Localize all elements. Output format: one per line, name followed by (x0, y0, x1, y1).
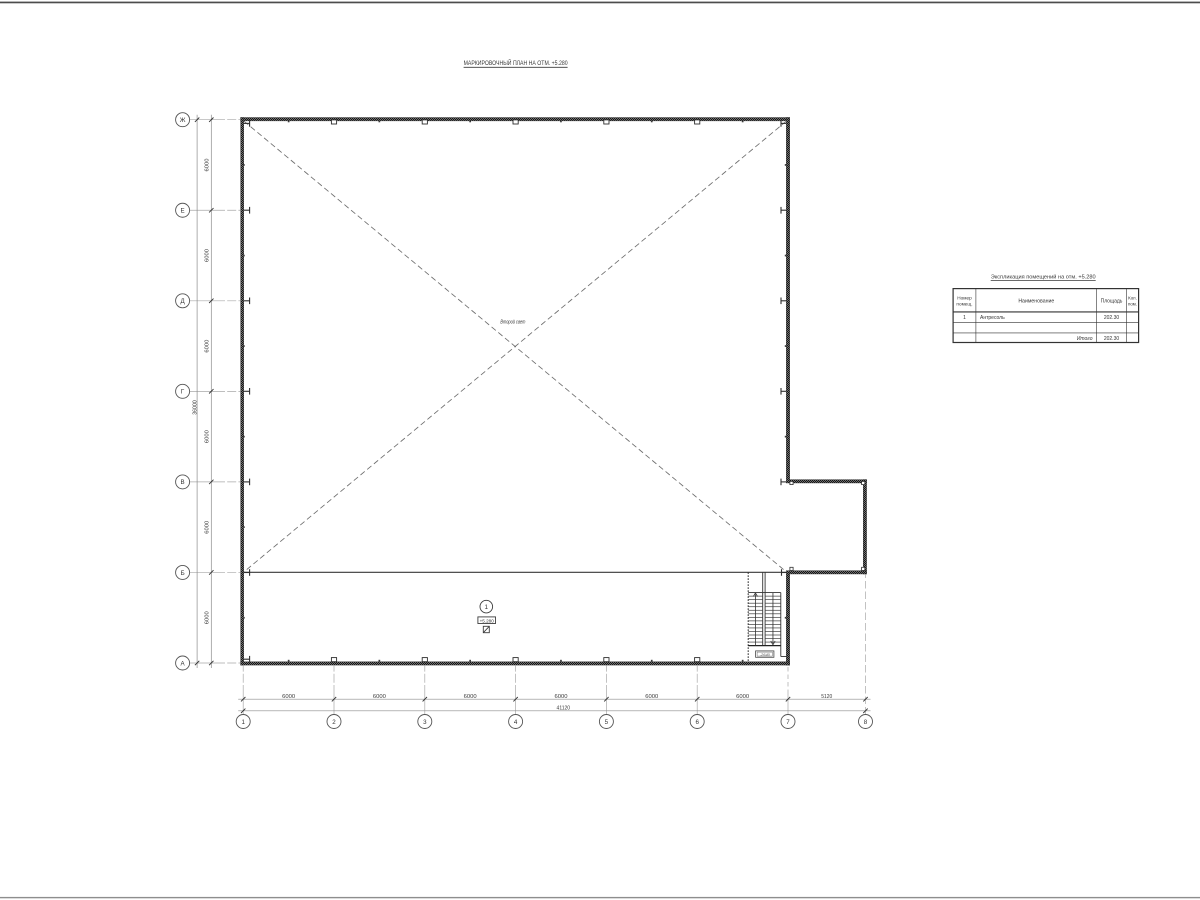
svg-text:5: 5 (605, 719, 609, 726)
svg-text:8: 8 (864, 719, 868, 726)
svg-text:6000: 6000 (205, 339, 211, 352)
svg-text:6000: 6000 (205, 611, 211, 624)
svg-text:6000: 6000 (282, 694, 295, 700)
svg-text:Г: Г (181, 389, 185, 396)
svg-text:1: 1 (241, 719, 245, 726)
svg-text:А: А (181, 660, 186, 667)
svg-text:Второй свет: Второй свет (500, 319, 525, 326)
svg-text:6000: 6000 (736, 694, 749, 700)
svg-text:2: 2 (332, 719, 336, 726)
svg-text:Наименование: Наименование (1018, 299, 1054, 305)
svg-text:Площадь: Площадь (1101, 299, 1123, 305)
svg-text:Ж: Ж (180, 117, 186, 124)
svg-text:5120: 5120 (821, 694, 832, 700)
svg-text:Антресоль: Антресоль (980, 315, 1005, 321)
svg-text:Итого: Итого (1077, 336, 1093, 342)
svg-text:6000: 6000 (205, 249, 211, 262)
svg-text:6000: 6000 (645, 694, 658, 700)
svg-text:В: В (181, 479, 185, 486)
svg-text:7: 7 (786, 719, 790, 726)
svg-text:Номер: Номер (957, 295, 972, 300)
svg-text:3: 3 (423, 719, 427, 726)
svg-text:1: 1 (485, 604, 489, 611)
svg-text:+5.280: +5.280 (480, 618, 495, 623)
svg-text:6000: 6000 (373, 694, 386, 700)
svg-text:4: 4 (514, 719, 518, 726)
svg-text:помещ.: помещ. (956, 301, 972, 306)
svg-text:Д: Д (180, 298, 185, 305)
svg-text:6: 6 (695, 719, 699, 726)
svg-text:36000: 36000 (193, 400, 199, 415)
svg-text:пом.: пом. (1128, 301, 1137, 306)
svg-text:Е: Е (181, 208, 185, 215)
svg-text:6000: 6000 (464, 694, 477, 700)
svg-text:6000: 6000 (205, 158, 211, 171)
svg-text:202.30: 202.30 (1104, 336, 1120, 342)
svg-text:202.30: 202.30 (1104, 315, 1120, 321)
svg-text:1: 1 (963, 315, 966, 321)
svg-text:Экспликация помещений на отм.: Экспликация помещений на отм. +5.280 (991, 274, 1096, 281)
svg-text:6000: 6000 (555, 694, 568, 700)
svg-text:МАРКИРОВОЧНЫЙ ПЛАН НА ОТМ. +5.: МАРКИРОВОЧНЫЙ ПЛАН НА ОТМ. +5.280 (464, 58, 568, 67)
svg-text:6000: 6000 (205, 430, 211, 443)
svg-text:Б: Б (181, 570, 185, 577)
svg-text:6000: 6000 (205, 521, 211, 534)
svg-text:Кол.: Кол. (1128, 295, 1137, 300)
svg-text:41120: 41120 (557, 706, 571, 712)
svg-text:-2640: -2640 (760, 652, 771, 657)
